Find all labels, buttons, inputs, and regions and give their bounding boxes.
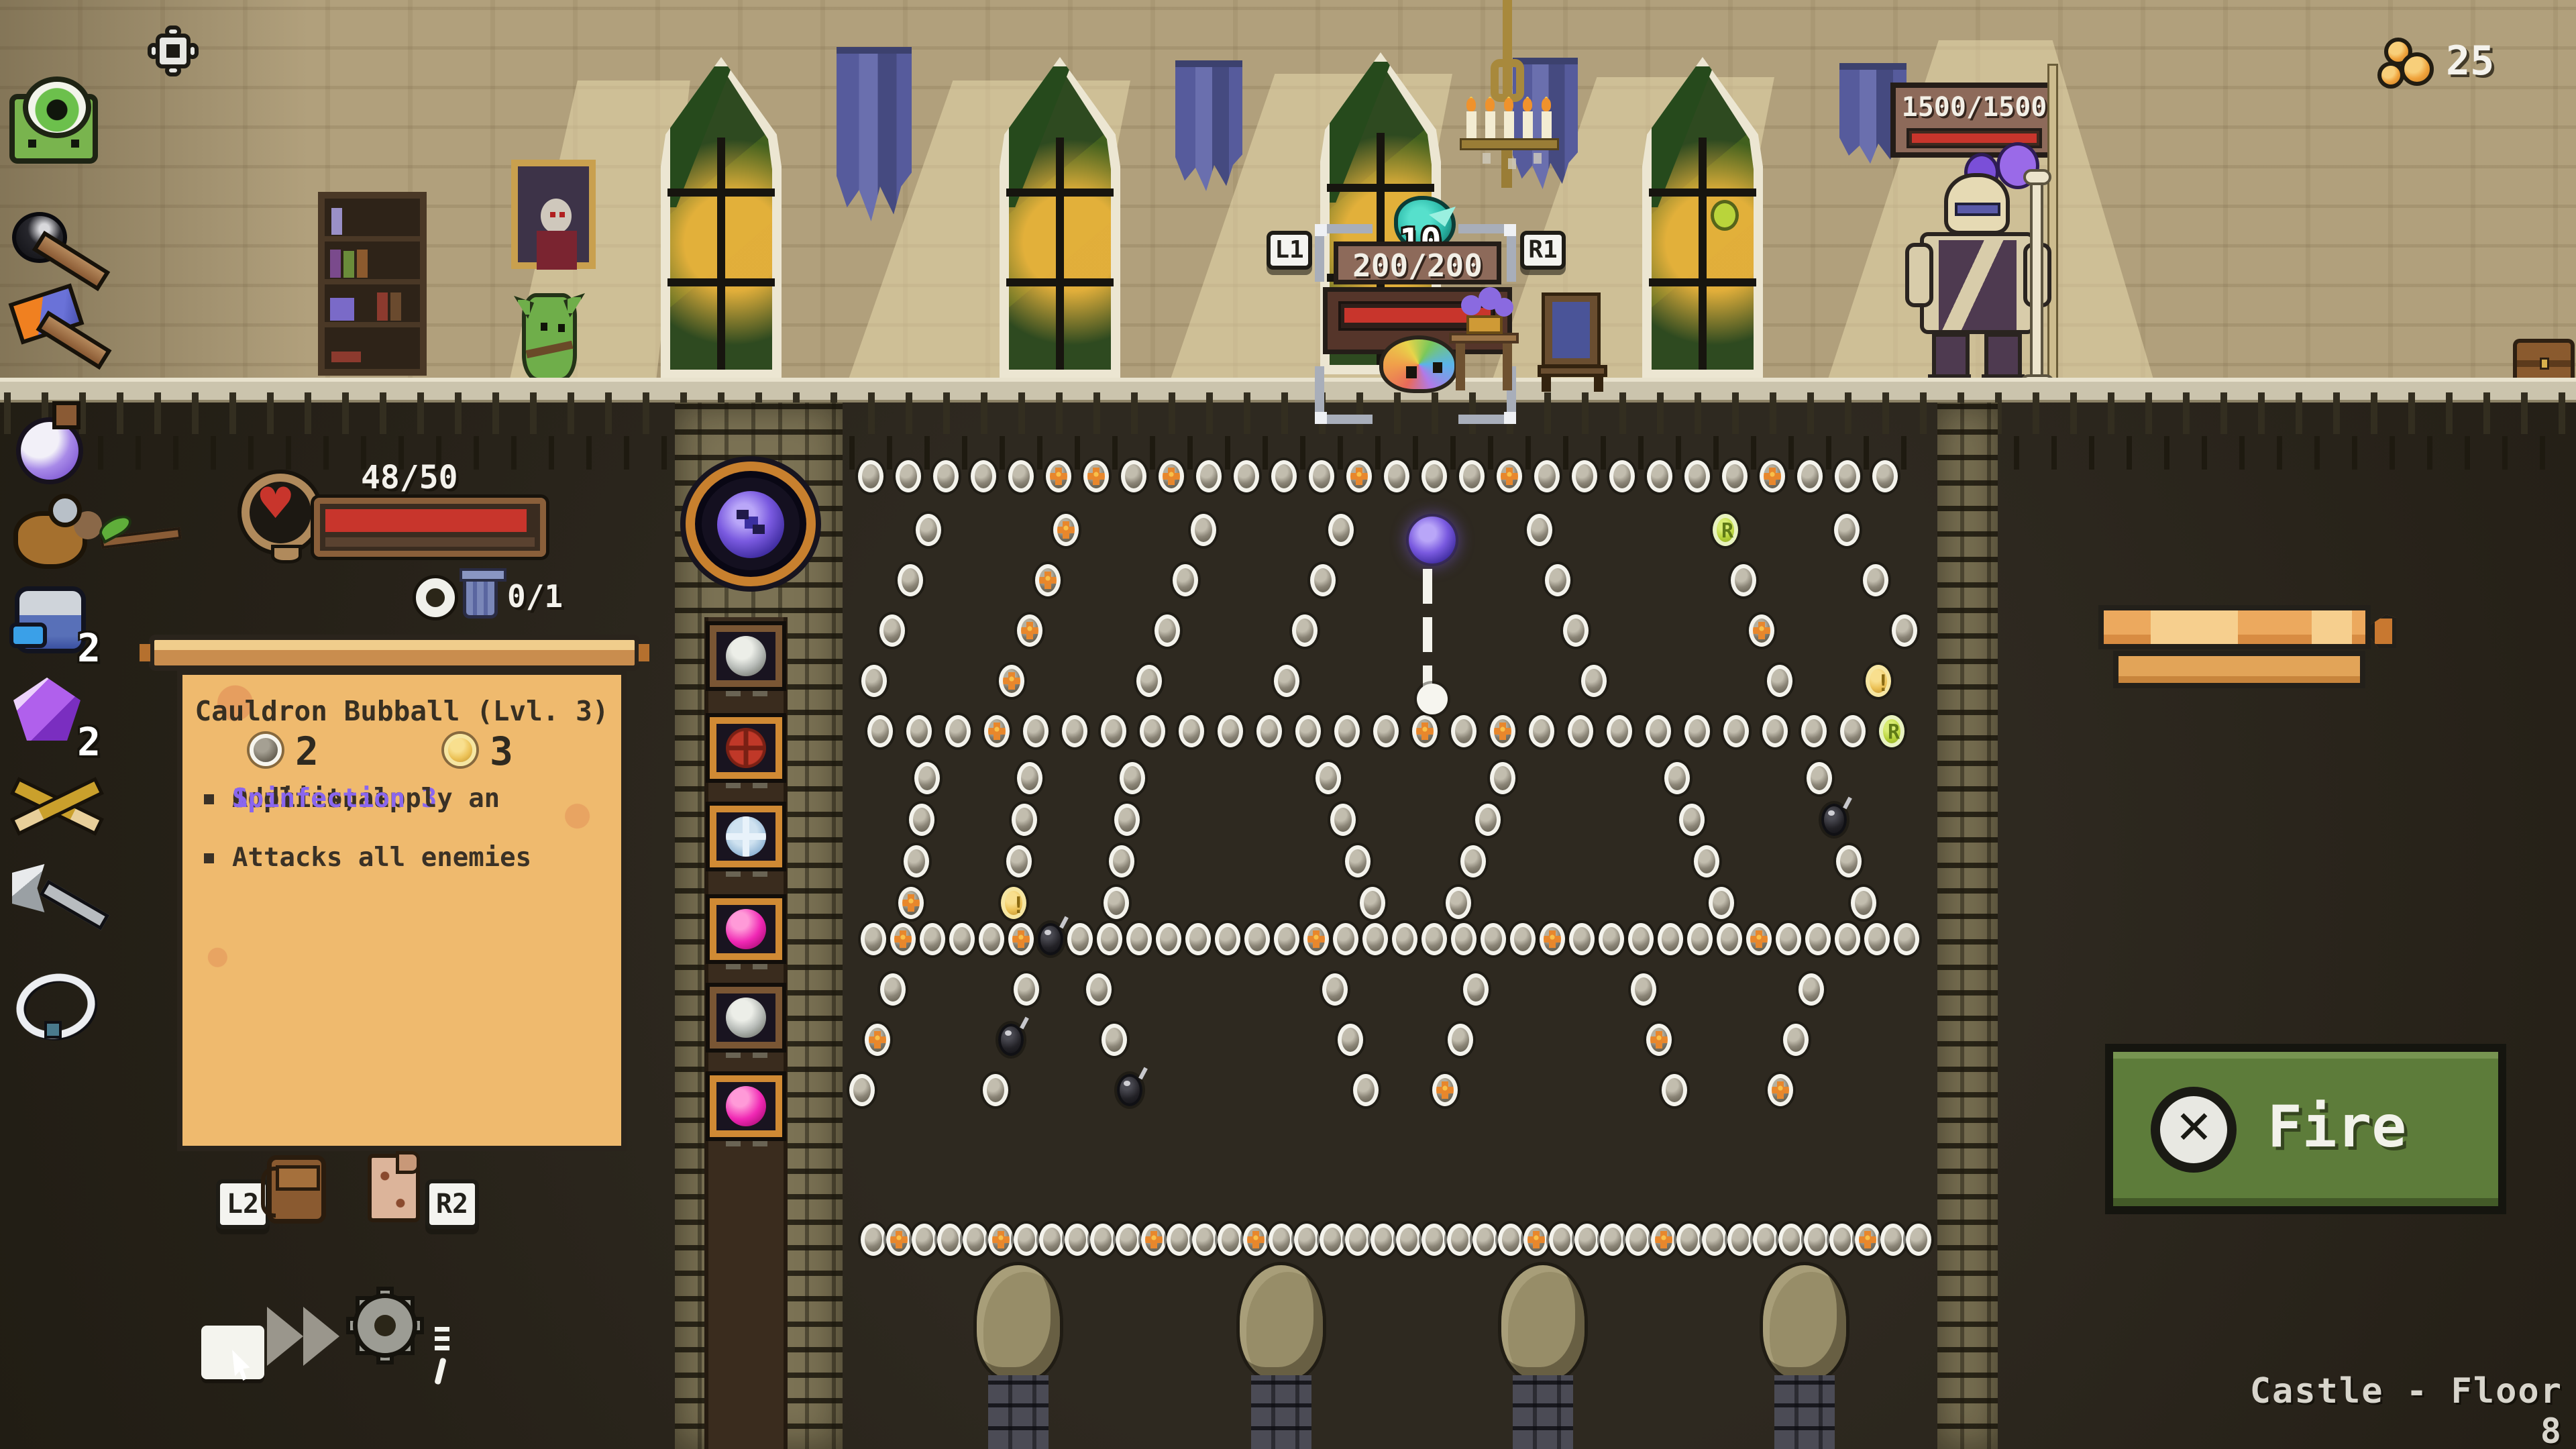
peg-normal [1835,923,1860,955]
peg-normal [1906,1224,1931,1256]
fence-post [1225,436,1230,470]
peg-normal [1892,614,1917,647]
fire-button-label: Fire [2267,1093,2406,1161]
peg-normal [1392,923,1417,955]
peg-normal [1563,614,1589,647]
fence-post [136,436,141,470]
peg-normal [1244,923,1270,955]
orb-slot-rock[interactable] [710,987,782,1049]
fence-post [1037,436,1042,470]
peg-normal [1894,923,1919,955]
peg-normal [1271,460,1297,492]
fence-post [1732,392,1739,434]
enemy-hp-value: 200/200 [1338,248,1497,284]
wooden-plank-sign [2098,605,2371,649]
peg-crit [865,1024,890,1056]
peg-crit [984,715,1010,747]
peg-normal [1783,1024,1809,1056]
goblin-character [522,293,577,382]
relic-potion[interactable] [9,400,98,486]
peg-normal [1173,564,1198,596]
fence-post [1676,436,1681,470]
peg-normal [1778,1224,1804,1256]
fence-post [267,392,274,434]
fence-post [2408,392,2415,434]
peg-normal [1574,1224,1600,1256]
peg-crit [898,887,924,919]
peg-normal [971,460,996,492]
fence-post [380,392,386,434]
damage-value: 2 [295,729,319,774]
wooden-plank-sign-lower [2113,651,2365,688]
peg-normal [1065,1224,1090,1256]
peg-normal [861,1224,886,1256]
peg-normal [1006,845,1032,877]
peg-normal [1447,1224,1472,1256]
crit-coin-icon [444,734,476,766]
bone-staff [2030,176,2043,385]
peg-crit [1141,1224,1167,1256]
peg-normal [1687,923,1713,955]
fence-post [1000,436,1005,470]
peg-normal [1256,715,1282,747]
fence-post [492,392,499,434]
candle-flame [1523,98,1532,111]
fence-post [2352,436,2357,470]
peg-normal [1310,564,1336,596]
peg-normal [1086,973,1112,1006]
fence-post [568,392,574,434]
peg-normal [949,923,975,955]
l1-button-prompt[interactable]: L1 [1267,231,1312,270]
side-table [1449,333,1519,390]
peg-normal [1218,1224,1243,1256]
inventory-backpack-icon[interactable] [267,1155,326,1224]
fence-post [1544,392,1551,434]
card-scroll-roller [149,635,640,671]
fence-post [154,392,161,434]
peg-normal [1662,1074,1687,1106]
fence-post [549,436,554,470]
relic-bomb-stick[interactable] [9,208,98,294]
fence-post [943,392,950,434]
fence-post [2239,436,2245,470]
candle-flame [1485,98,1495,111]
peg-normal [1102,1024,1127,1056]
chandelier-crystal [1483,153,1491,164]
card-description: Applies Spinfection 3On crit, apply anad… [200,769,623,828]
peg-crit [1046,460,1071,492]
fence-post [1751,436,1756,470]
relic-badge: 2 [77,719,101,765]
fence-post [1826,436,1831,470]
fence-post [1488,436,1493,470]
card-title: Cauldron Bubball (Lvl. 3) [182,695,621,727]
peg-bomb [998,1024,1024,1056]
current-orb-display[interactable] [686,462,816,586]
peg-normal [1192,1224,1218,1256]
peg-normal [1801,715,1827,747]
peg-normal [1097,923,1122,955]
peg-normal [1328,514,1354,546]
relic-glove[interactable]: 2 [9,578,98,664]
fence-post [1770,392,1776,434]
peg-normal [1104,887,1129,919]
fence-post [1300,436,1305,470]
fence-post [2390,436,2395,470]
fence-post [323,436,329,470]
fence-post [2033,392,2039,434]
peg-normal [858,460,883,492]
relic-scroll-icon[interactable] [368,1154,420,1222]
peg-crit [1159,460,1184,492]
fence-post [981,392,987,434]
fence-post [2427,436,2432,470]
peg-normal [1840,715,1866,747]
bone-staff-top [2023,169,2051,185]
peg-normal [1481,923,1506,955]
fence-post [117,392,123,434]
candle [1523,111,1533,140]
fence-post [643,392,649,434]
relic-arrows[interactable] [9,766,98,852]
fence-post [1807,392,1814,434]
peg-normal [1572,460,1597,492]
fence-post [2521,392,2528,434]
fence-post [661,436,667,470]
peg-crit [886,1224,912,1256]
peg-normal [1631,973,1656,1006]
peg-normal [1767,665,1792,697]
fence-post [2540,436,2545,470]
fence-post [2446,392,2453,434]
peg-normal [1581,665,1607,697]
fence-post [1244,392,1250,434]
r1-button-prompt[interactable]: R1 [1520,231,1566,270]
fence-post [1619,392,1626,434]
fence-post [605,392,612,434]
pillar-stem [1251,1375,1311,1449]
peg-normal [1568,715,1593,747]
peg-normal [1156,923,1181,955]
fence-post [1131,392,1138,434]
settings-gear-button[interactable] [353,1293,417,1358]
currency-amount: 25 [2446,38,2494,85]
fence-post [2314,436,2320,470]
peg-normal [1320,1224,1345,1256]
peg-normal [1625,1224,1651,1256]
right-wall [1937,402,1998,1449]
fence-post [1432,392,1438,434]
peg-normal [1017,762,1042,794]
peg-normal [861,665,887,697]
pillar-cap [1240,1265,1323,1379]
peg-normal [1834,514,1860,546]
damage-ball-icon [250,734,282,766]
fence-post [248,436,254,470]
peg-crit [1053,514,1079,546]
peg-normal [867,715,893,747]
relic-pouch[interactable] [9,488,98,574]
peg-normal [920,923,945,955]
fence-post [1713,436,1719,470]
fence-post [1882,392,1889,434]
fence-post [1695,392,1701,434]
peg-normal [1215,923,1240,955]
peg-normal [909,804,934,836]
peg-crit [1346,460,1372,492]
blue-banner [837,47,912,221]
peg-normal [1776,923,1801,955]
peg-normal [1727,1224,1753,1256]
peg-normal [1762,715,1788,747]
relic-axe[interactable] [9,863,98,949]
fence-post [1638,436,1644,470]
fence-post [1582,392,1589,434]
peg-normal [1014,1224,1039,1256]
fence-post [1657,392,1664,434]
x-button-icon [2151,1087,2237,1173]
peg-normal [1646,715,1671,747]
peg-crit [1768,1074,1793,1106]
peg-crit [1303,923,1329,955]
fence-post [868,392,875,434]
peg-crit [988,1224,1014,1256]
peg-normal [1155,614,1180,647]
peg-crit [1646,1024,1672,1056]
chandelier-crystal [1508,158,1516,169]
peg-bomb [1821,804,1847,836]
peg-crit [1746,923,1772,955]
peg-normal [906,715,932,747]
peg-normal [1717,923,1742,955]
floor-ledge [0,378,2576,403]
boss-hp-bar: 1500/1500 [1890,83,2058,158]
orb-slot-pink[interactable] [710,1075,782,1137]
peg-normal [1179,715,1204,747]
game-screen: 1500/1500 25 [0,0,2576,1449]
fence-post [906,392,912,434]
peg-normal [1396,1224,1421,1256]
peg-normal [1333,923,1358,955]
fence-post [2183,392,2190,434]
peg-bomb [1038,923,1063,955]
fence-post [98,436,103,470]
peg-normal [1549,1224,1574,1256]
peg-normal [1864,923,1890,955]
peg-normal [1373,715,1399,747]
target-bracket [1315,366,1373,424]
peg-normal [1529,715,1554,747]
boss-hp-value: 1500/1500 [1896,92,2053,123]
peg-normal [1008,460,1034,492]
fence-post [2559,392,2565,434]
fence-post [2164,436,2169,470]
peg-crit [1523,1224,1549,1256]
trash-icon[interactable] [463,576,498,619]
peg-normal [1234,460,1259,492]
peg-normal [1731,564,1756,596]
fence-post [511,436,517,470]
fence-post [1920,392,1927,434]
relic-hammer[interactable] [9,290,98,376]
candle-flame [1504,98,1513,111]
peg-normal [1362,923,1388,955]
fence-post [624,436,629,470]
fire-button[interactable]: Fire [2105,1044,2506,1214]
settings-gear-icon[interactable] [149,27,197,75]
peg-normal [1360,887,1385,919]
discard-button-icon[interactable] [416,578,455,617]
launcher-orb[interactable] [1409,517,1456,563]
fence-post [229,392,236,434]
blue-banner [1175,60,1242,191]
peg-normal [1322,973,1348,1006]
treasure-chest [2513,339,2575,383]
peg-normal [1274,665,1299,697]
peg-normal [1126,923,1152,955]
candle [1485,111,1495,140]
location-label: Castle - Floor 8 [2227,1371,2563,1449]
peg-normal [916,514,941,546]
peg-normal [1012,804,1037,836]
peg-normal [983,1074,1008,1106]
pillar-cap [977,1265,1060,1379]
peg-normal [1684,460,1710,492]
peg-normal [1446,887,1471,919]
peg-normal [1039,1224,1065,1256]
knight-boss [1905,173,2046,394]
peg-normal [1140,715,1165,747]
fence-post [849,436,855,470]
sign-pole [2047,64,2058,387]
peg-bomb [1117,1074,1142,1106]
fence-post [305,392,311,434]
peg-normal [1330,804,1356,836]
relic-gem[interactable]: 2 [9,672,98,758]
peg-normal [1371,1224,1396,1256]
orb-slot-pink[interactable] [710,898,782,960]
fence-post [474,436,479,470]
peg-normal [1607,715,1632,747]
fence-post [2258,392,2265,434]
rainbow-slime-enemy[interactable] [1379,335,1458,393]
peg-normal [912,1224,937,1256]
peg-normal [1451,923,1477,955]
peg-normal [1191,514,1216,546]
pillar-cap [1501,1265,1585,1379]
peg-normal [1384,460,1409,492]
peg-normal [1753,1224,1778,1256]
peg-crit [1651,1224,1676,1256]
wall-portrait [511,160,596,269]
pillar-cap [1763,1265,1846,1379]
peg-normal [1527,514,1552,546]
peg-normal [1599,923,1624,955]
player-hp-bar [314,498,546,557]
peg-normal [1338,1024,1363,1056]
peg-normal [1676,1224,1702,1256]
peg-normal [1702,1224,1727,1256]
relic-eye-chest[interactable] [9,94,98,164]
peg-normal [979,923,1004,955]
peg-coin [1866,665,1891,697]
peg-normal [1090,1224,1116,1256]
peg-normal [1167,1224,1192,1256]
peg-normal [1807,762,1832,794]
fence-post [1375,436,1381,470]
peg-normal [1679,804,1705,836]
peg-normal [937,1224,963,1256]
fence-post [1601,436,1606,470]
orb-slot-rock[interactable] [710,625,782,687]
r2-button-prompt[interactable]: R2 [425,1179,479,1229]
peg-crit [1540,923,1565,955]
pillar-stem [988,1375,1049,1449]
peg-normal [1460,845,1486,877]
fence-post [2070,392,2077,434]
peg-normal [1475,804,1501,836]
fence-post [2333,392,2340,434]
aim-dash [1423,569,1432,604]
relic-badge: 2 [77,625,101,671]
fence-post [2483,392,2490,434]
fence-post [1338,436,1343,470]
bookshelf [318,192,427,376]
fence-post [192,392,199,434]
peg-normal [1545,564,1570,596]
peg-normal [1569,923,1595,955]
peg-crit [1008,923,1034,955]
aim-ball [1417,684,1448,714]
peg-normal [849,1074,875,1106]
peg-normal [1490,762,1515,794]
peg-normal [1836,845,1862,877]
fence-post [2465,436,2470,470]
peg-normal [1863,564,1888,596]
peg-normal [1067,923,1093,955]
peg-normal [1722,460,1748,492]
candle-flame [1466,98,1476,111]
orb-slot-rune[interactable] [710,717,782,779]
peg-normal [1658,923,1683,955]
peg-normal [1472,1224,1498,1256]
peg-normal [1185,923,1211,955]
crit-value: 3 [490,729,513,774]
flower-pot [1466,315,1503,334]
fence-post [2108,392,2114,434]
candle [1504,111,1514,140]
peg-normal [880,973,906,1006]
peg-normal [1345,1224,1371,1256]
peg-normal [1196,460,1222,492]
peg-normal [904,845,929,877]
peg-green [1879,715,1904,747]
peg-normal [1459,460,1485,492]
enemy-hp-panel: 200/200 [1334,241,1501,284]
fence-post [1864,436,1869,470]
fence-post [2051,436,2057,470]
peg-normal [1799,973,1824,1006]
chandelier-plate [1460,138,1559,150]
peg-crit [1412,715,1438,747]
relic-loop[interactable] [9,963,98,1049]
fence-post [1413,436,1418,470]
orb-slot-snow[interactable] [710,806,782,867]
peg-normal [1534,460,1560,492]
peg-normal [898,564,923,596]
peg-normal [1292,614,1318,647]
